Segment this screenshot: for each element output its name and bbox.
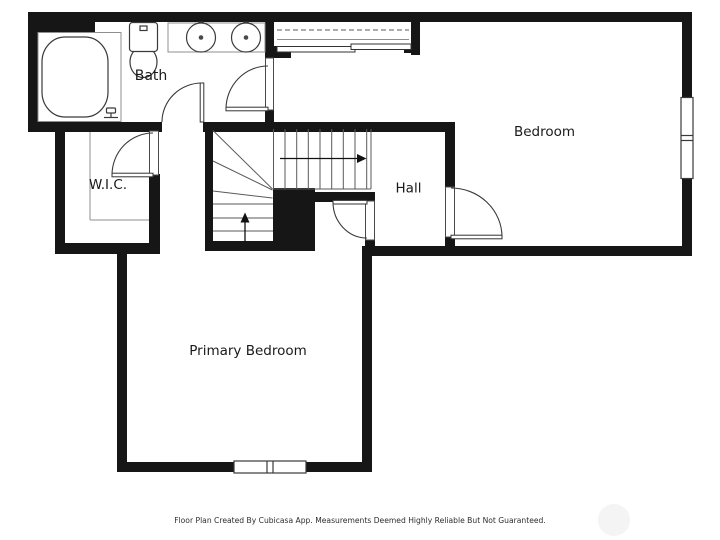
bathtub-icon <box>42 37 108 117</box>
wall-right-outer-lower <box>682 178 692 256</box>
wall-primary-right <box>362 246 372 472</box>
stair-up-arrow-vertical-icon <box>241 213 250 243</box>
bedroom-door-leaf <box>451 235 502 239</box>
floor-plan-svg: Bath W.I.C. Hall Bedroom Primary Bedroom… <box>0 0 720 540</box>
bath-door-leaf <box>200 83 204 122</box>
closet-sliding-door-right <box>351 44 411 50</box>
bath-door-arc <box>162 83 202 122</box>
room-label-bedroom: Bedroom <box>514 124 575 140</box>
footer-disclaimer: Floor Plan Created By Cubicasa App. Meas… <box>174 516 546 525</box>
sink-right-icon <box>232 22 261 52</box>
toilet-flush-icon <box>140 26 147 31</box>
wall-bath-closet-divider-lower <box>265 109 274 132</box>
bath-landing-door-arc <box>226 66 268 109</box>
bath-door <box>162 83 204 122</box>
windows <box>234 98 693 474</box>
hall-door-leaf <box>333 200 367 204</box>
wall-stair-left <box>205 122 213 250</box>
wall-left-outer-bath <box>28 12 38 132</box>
wall-mid-horizontal <box>203 122 455 132</box>
floor-plan-canvas: Bath W.I.C. Hall Bedroom Primary Bedroom… <box>0 0 720 540</box>
wall-primary-left <box>117 246 127 472</box>
wall-primary-bottom-left <box>117 462 234 472</box>
hall-door-arc <box>333 202 367 238</box>
wall-closet-right <box>411 20 420 55</box>
bedroom-door-arc <box>451 188 502 237</box>
wall-bath-closet-divider-upper <box>265 13 274 59</box>
bedroom-window <box>681 98 693 179</box>
wall-tub-niche-step <box>28 12 95 32</box>
wic-door-frame <box>150 131 159 175</box>
room-label-primary-bedroom: Primary Bedroom <box>189 343 307 359</box>
wall-right-outer-upper <box>682 12 692 98</box>
bedroom-door-frame <box>446 187 455 237</box>
wall-wic-left <box>55 126 65 254</box>
walls <box>28 12 692 472</box>
room-label-hall: Hall <box>396 181 422 197</box>
primary-bedroom-window <box>234 461 306 473</box>
room-label-bath: Bath <box>135 68 168 84</box>
wall-hall-right-upper <box>445 122 455 188</box>
closet-fixtures <box>277 30 411 52</box>
sink-left-icon <box>187 22 216 52</box>
wall-stair-void <box>273 188 315 250</box>
wall-top-outer <box>28 12 692 22</box>
hall-door-frame <box>366 201 375 240</box>
wall-wic-right-lower <box>149 174 160 254</box>
bedroom-door <box>446 187 503 239</box>
wall-south <box>362 246 692 256</box>
closet-sliding-door-left <box>277 47 355 53</box>
bath-landing-door <box>226 58 274 111</box>
watermark-logo <box>598 504 630 536</box>
room-label-wic: W.I.C. <box>89 177 127 193</box>
stair-up-arrow-right-icon <box>280 154 367 163</box>
wall-bath-bottom-left <box>28 122 162 132</box>
stair-winder-treads <box>213 131 273 205</box>
wic-door-arc <box>112 133 153 175</box>
tub-faucet-icon <box>104 108 118 118</box>
wall-wic-bottom <box>55 243 160 254</box>
bath-landing-door-leaf <box>226 107 268 111</box>
wic-door <box>112 131 159 177</box>
hall-door <box>333 200 375 240</box>
